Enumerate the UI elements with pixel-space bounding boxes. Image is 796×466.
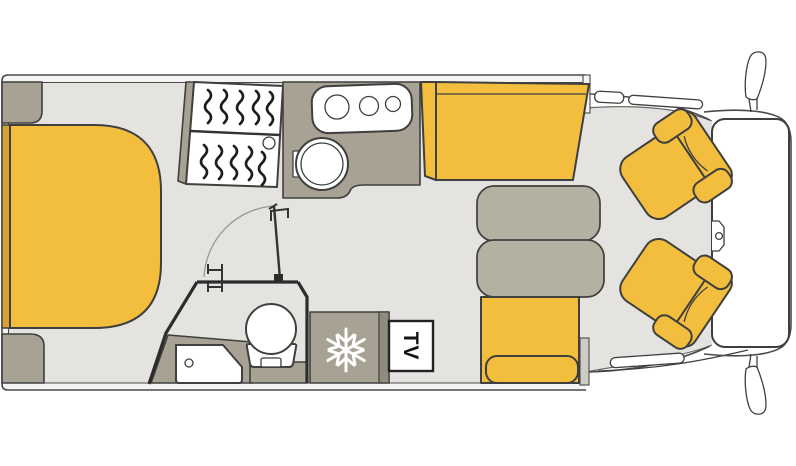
island-bed: [2, 125, 161, 328]
washbasin-drain-icon: [185, 359, 193, 367]
rear-cabinet-top: [2, 82, 42, 123]
kitchen-block: [283, 82, 420, 198]
tv-mount: TV: [389, 321, 433, 371]
forward-bench-seat: [421, 82, 589, 180]
fridge-hinge-strip: [379, 312, 389, 383]
wall-end-panel-bottom: [580, 338, 589, 385]
rearview-mirror-icon: [712, 221, 724, 251]
floorplan-canvas: TV: [0, 0, 796, 466]
bed-headboard: [2, 125, 10, 328]
bench-cushion: [436, 82, 589, 180]
shower-cubicle: [178, 82, 283, 187]
side-bench-backrest: [486, 356, 578, 383]
floorplan-stage: TV: [0, 0, 796, 466]
table-top-half: [477, 186, 600, 241]
toilet-flush: [261, 358, 281, 367]
side-bench-seat: [481, 297, 579, 383]
table-bottom-half: [477, 240, 604, 297]
toilet-bowl: [246, 304, 296, 354]
bed-mattress: [10, 125, 161, 328]
shower-drain-icon: [263, 137, 275, 149]
door-pivot: [274, 274, 283, 283]
tv-label: TV: [399, 332, 422, 361]
dinette-table: [477, 186, 604, 297]
fridge: [310, 312, 389, 383]
hob: [311, 83, 413, 133]
rear-cabinet-bottom: [2, 334, 44, 383]
kitchen-sink: [296, 138, 348, 190]
